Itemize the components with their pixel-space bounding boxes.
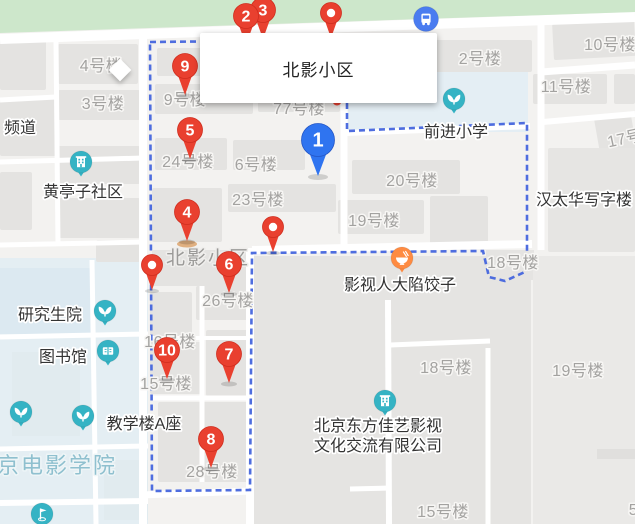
- graduate-school-label[interactable]: 研究生院: [18, 306, 82, 324]
- building-label: 20号楼: [386, 172, 438, 190]
- infobox-title: 北影小区: [283, 56, 355, 81]
- svg-text:2: 2: [242, 9, 251, 26]
- building-label: 15号楼: [417, 503, 469, 521]
- building-label: 28号楼: [186, 463, 238, 481]
- building-label: 19号楼: [552, 362, 604, 380]
- svg-text:9: 9: [181, 59, 190, 76]
- pindao-label-label[interactable]: 频道: [4, 119, 36, 137]
- playground-icon[interactable]: [31, 503, 53, 524]
- svg-text:3: 3: [259, 3, 268, 20]
- building-label: 2号楼: [459, 50, 501, 68]
- building-label: 19号楼: [348, 212, 400, 230]
- bus-stop-icon[interactable]: [414, 7, 439, 32]
- hantaihua-office-label[interactable]: 汉太华写字楼: [536, 191, 632, 209]
- film-dumpling-restaurant-label[interactable]: 影视人大陷饺子: [344, 276, 456, 294]
- building-label: 5号楼: [629, 501, 635, 519]
- qianjin-primary-school-label[interactable]: 前进小学: [424, 123, 488, 141]
- campus-area-label: 京电影学院: [0, 453, 117, 478]
- building-label: 10号楼: [584, 36, 635, 54]
- building-label: 6号楼: [235, 156, 277, 174]
- library-label[interactable]: 图书馆: [39, 348, 87, 366]
- teaching-building-a-label[interactable]: 教学楼A座: [107, 415, 182, 433]
- building-label: 3号楼: [82, 95, 124, 113]
- map-viewport[interactable]: 4号楼3号楼9号楼77号楼2号楼10号楼11号楼17号楼24号楼6号楼23号楼2…: [0, 0, 635, 524]
- huangtingzi-community-label[interactable]: 黄亭子社区: [43, 183, 123, 201]
- estate-infobox[interactable]: 北影小区: [200, 33, 437, 103]
- svg-text:8: 8: [207, 432, 216, 449]
- svg-text:7: 7: [225, 347, 234, 364]
- svg-text:4: 4: [183, 205, 192, 222]
- building-label: 18号楼: [420, 359, 472, 377]
- svg-text:10: 10: [158, 343, 176, 360]
- building-label: 11号楼: [541, 78, 592, 96]
- svg-text:6: 6: [225, 257, 234, 274]
- svg-text:5: 5: [186, 123, 195, 140]
- svg-text:1: 1: [312, 130, 323, 152]
- building-label: 18号楼: [487, 254, 539, 272]
- building-label: 23号楼: [232, 191, 284, 209]
